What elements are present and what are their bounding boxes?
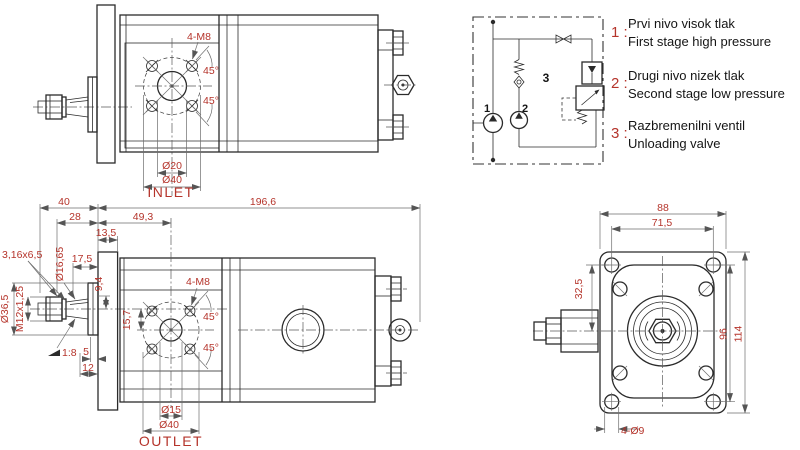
dim-12: 12 [82, 362, 94, 374]
dim-o40: Ø40 [159, 419, 179, 431]
schematic-pump1-label: 1 [484, 103, 490, 115]
dim-m12: M12x1,25 [14, 286, 26, 332]
front-view: 88 71,5 32,5 96 114 4-Ø9 [533, 202, 750, 437]
top-bolt-note: 4-M8 [187, 31, 211, 43]
bottom-bolt-note: 4-M8 [186, 276, 210, 288]
technical-drawing-canvas: 4-M8 45° 45° Ø20 Ø40 INLET 1 2 3 [0, 0, 800, 450]
schematic-pump2-label: 2 [522, 103, 528, 115]
top-angle-upper: 45° [203, 65, 219, 77]
top-port-diameter: Ø20 [162, 160, 182, 172]
dim-13-5: 13,5 [96, 227, 117, 239]
legend-num-3: 3 : [611, 125, 628, 142]
inlet-label: INLET [147, 184, 194, 200]
legend-1-line1: Prvi nivo visok tlak [628, 16, 735, 31]
dim-49-3: 49,3 [133, 211, 154, 223]
legend-3-line1: Razbremenilni ventil [628, 118, 745, 133]
outlet-label: OUTLET [139, 433, 203, 449]
bottom-angle-lower: 45° [203, 342, 219, 354]
dim-o15: Ø15 [161, 404, 181, 416]
dim-taper: 1:8 [62, 347, 77, 359]
dim-4-o9: 4-Ø9 [621, 425, 645, 437]
dim-196-6: 196,6 [250, 196, 276, 208]
dim-36-5: Ø36,5 [0, 295, 11, 324]
bottom-side-view: 40 196,6 28 49,3 13,5 3,16x6,5 Ø16,65 17… [0, 196, 420, 449]
dim-15-7: 15,7 [121, 310, 133, 331]
legend-num-2: 2 : [611, 75, 628, 92]
hydraulic-schematic: 1 2 3 [473, 17, 604, 164]
dim-71-5: 71,5 [652, 217, 673, 229]
dim-key: 3,16x6,5 [2, 249, 42, 261]
legend-num-1: 1 : [611, 24, 628, 41]
dim-5: 5 [83, 346, 89, 358]
dim-17-5: 17,5 [72, 253, 93, 265]
top-angle-lower: 45° [203, 95, 219, 107]
legend-2-line2: Second stage low pressure [628, 86, 785, 101]
schematic-valve-label: 3 [543, 71, 550, 85]
pump-drawing-svg: 4-M8 45° 45° Ø20 Ø40 INLET 1 2 3 [0, 0, 800, 450]
legend-2-line1: Drugi nivo nizek tlak [628, 68, 745, 83]
dim-28: 28 [69, 211, 81, 223]
dim-88: 88 [657, 202, 669, 214]
dim-114: 114 [733, 325, 745, 342]
legend: 1 : Prvi nivo visok tlak First stage hig… [611, 16, 785, 151]
dim-9-4: 9,4 [93, 277, 105, 292]
dim-16-65: Ø16,65 [54, 247, 66, 282]
legend-1-line2: First stage high pressure [628, 34, 771, 49]
legend-3-line2: Unloading valve [628, 136, 721, 151]
dim-32-5: 32,5 [573, 279, 585, 300]
check-valve-icon [514, 76, 524, 88]
top-side-view: 4-M8 45° 45° Ø20 Ø40 INLET [33, 5, 418, 200]
dim-96: 96 [718, 328, 730, 340]
dim-40: 40 [58, 196, 70, 208]
bottom-angle-upper: 45° [203, 311, 219, 323]
